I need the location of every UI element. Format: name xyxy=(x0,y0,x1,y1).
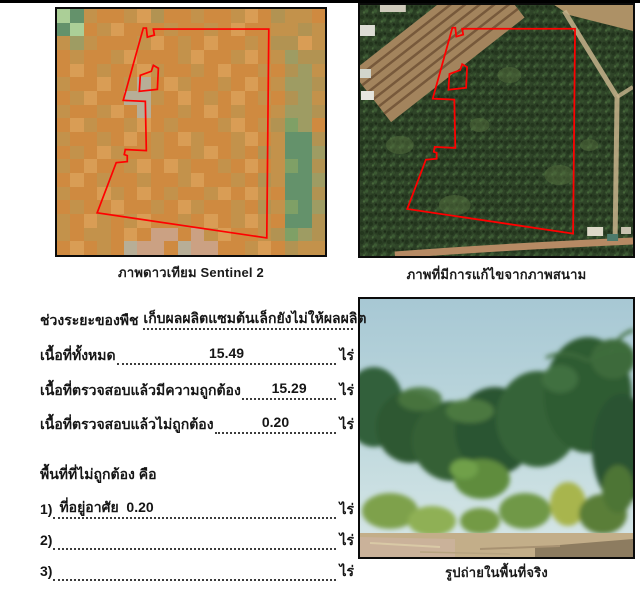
aerial-caption: ภาพที่มีการแก้ไขจากภาพสนาม xyxy=(358,264,635,285)
item-3-unit: ไร่ xyxy=(337,561,354,581)
item-3-value xyxy=(53,579,336,581)
incorrect-item-1: 1) ที่อยู่อาศัย 0.20 ไร่ xyxy=(40,497,354,519)
incorrect-area-header: พื้นที่ที่ไม่ถูกต้อง คือ xyxy=(40,462,354,484)
crop-stage-label: ช่วงระยะของพืช xyxy=(40,310,139,330)
item-2-number: 2) xyxy=(40,530,52,550)
total-area-unit: ไร่ xyxy=(337,345,354,365)
incorrect-item-2: 2) ไร่ xyxy=(40,528,354,550)
item-1-unit: ไร่ xyxy=(337,499,354,519)
verified-incorrect-label: เนื้อที่ตรวจสอบแล้วไม่ถูกต้อง xyxy=(40,414,214,434)
aerial-illustration xyxy=(360,5,633,256)
item-1-value: ที่อยู่อาศัย 0.20 xyxy=(53,497,336,519)
item-2-value xyxy=(53,548,336,550)
verified-correct-value: 15.29 xyxy=(242,378,337,400)
item-3-number: 3) xyxy=(40,561,52,581)
photo-caption: รูปถ่ายในพื้นที่จริง xyxy=(358,562,635,583)
total-area-label: เนื้อที่ทั้งหมด xyxy=(40,345,116,365)
total-area-value: 15.49 xyxy=(117,343,337,365)
parcel-boundary-polygon xyxy=(97,28,269,238)
incorrect-item-3: 3) ไร่ xyxy=(40,559,354,581)
satellite-caption: ภาพดาวเทียม Sentinel 2 xyxy=(55,262,327,283)
verified-correct-label: เนื้อที่ตรวจสอบแล้วมีความถูกต้อง xyxy=(40,380,241,400)
item-1-number: 1) xyxy=(40,499,52,519)
sentinel-image xyxy=(55,7,327,257)
dry-grass-ground xyxy=(360,533,633,557)
field-corrected-image xyxy=(358,3,635,258)
crop-stage-value: เก็บผลผลิตแซมต้นเล็กยังไม่ให้ผลผลิต xyxy=(143,308,353,330)
site-photo xyxy=(358,297,635,559)
verified-correct-line: เนื้อที่ตรวจสอบแล้วมีความถูกต้อง 15.29 ไ… xyxy=(40,378,354,400)
verified-incorrect-line: เนื้อที่ตรวจสอบแล้วไม่ถูกต้อง 0.20 ไร่ xyxy=(40,412,354,434)
parcel-polygon-overlay-satellite xyxy=(57,9,325,255)
photo-illustration xyxy=(360,299,633,557)
total-area-line: เนื้อที่ทั้งหมด 15.49 ไร่ xyxy=(40,343,354,365)
document-page: ภาพดาวเทียม Sentinel 2 xyxy=(0,0,640,591)
verified-correct-unit: ไร่ xyxy=(337,380,354,400)
crop-stage-line: ช่วงระยะของพืช เก็บผลผลิตแซมต้นเล็กยังไม… xyxy=(40,308,354,330)
verified-incorrect-unit: ไร่ xyxy=(337,414,354,434)
item-2-unit: ไร่ xyxy=(337,530,354,550)
verified-incorrect-value: 0.20 xyxy=(215,412,337,434)
